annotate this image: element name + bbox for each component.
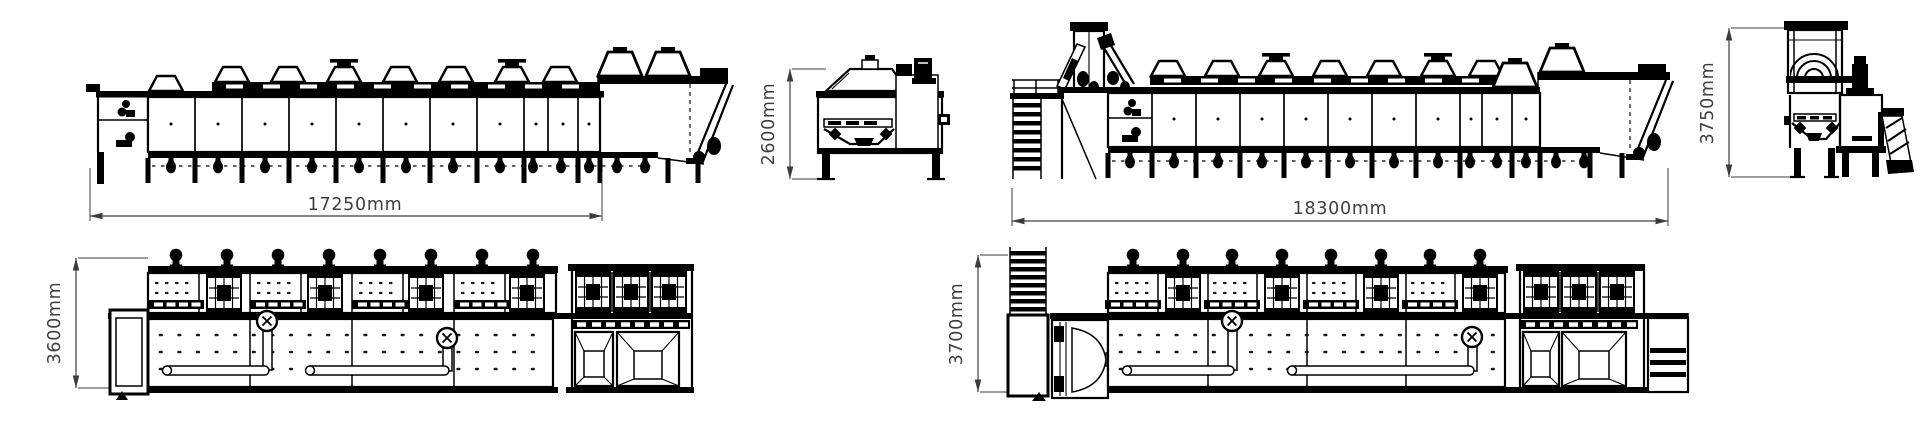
hopper-plan-b-1 xyxy=(1523,332,1559,386)
fan-symbol xyxy=(1222,311,1242,331)
plan-a-upper-deck xyxy=(148,273,556,313)
vent-knobs-b xyxy=(1127,249,1487,268)
fan-module xyxy=(576,272,610,312)
fan-symbol xyxy=(437,328,457,348)
plan-a-lower-deck xyxy=(145,311,553,387)
plan-view-b: 3700mm xyxy=(947,247,1688,401)
side-view-a: 17250mm xyxy=(86,47,733,221)
fan-symbol xyxy=(1462,327,1482,347)
dimension-end-a-height: 2600mm xyxy=(759,69,826,179)
end-a-side-panel xyxy=(896,75,938,153)
burner-row-b xyxy=(1112,151,1596,168)
engineering-drawing-canvas: 17250mm 2600mm xyxy=(0,0,1920,432)
dimension-label-side-a-length: 17250mm xyxy=(308,195,403,215)
burner-module xyxy=(207,273,241,313)
dimension-label-end-a-height: 2600mm xyxy=(759,83,779,166)
roof-hood-assembly-a xyxy=(149,47,690,91)
fan-module xyxy=(614,272,648,312)
discharge-chute-a xyxy=(598,68,733,164)
fan-block-plan-b xyxy=(1514,264,1646,393)
roof-hood-assembly-b xyxy=(1150,43,1584,87)
burner-module xyxy=(510,273,544,313)
fan-module xyxy=(1524,272,1558,312)
end-b-chute xyxy=(1878,108,1914,174)
ladder-plan-b xyxy=(1010,247,1046,315)
support-legs-b xyxy=(1106,153,1625,178)
hopper-plan-a-1 xyxy=(575,332,613,386)
plan-b-lower-deck xyxy=(1108,311,1505,387)
access-stairs-b xyxy=(1010,80,1096,179)
feed-elevator-b xyxy=(1057,22,1134,93)
fan-block-plan-a xyxy=(566,264,694,393)
infeed-box-plan-b xyxy=(1008,315,1048,396)
discharge-chute-b xyxy=(1538,64,1673,160)
end-b-motor xyxy=(1846,56,1874,95)
dimension-end-b-height: 3750mm xyxy=(1698,28,1795,177)
vent-knobs-a xyxy=(170,249,540,268)
side-view-b: 18300mm xyxy=(1010,22,1673,226)
dimension-label-end-b-height: 3750mm xyxy=(1698,62,1718,145)
burner-module xyxy=(1463,273,1497,313)
side-steps-plan-b xyxy=(1648,313,1688,392)
burner-module xyxy=(1265,273,1299,313)
hopper-plan-a-2 xyxy=(617,332,679,386)
burner-module xyxy=(1364,273,1398,313)
hopper-plan-b-2 xyxy=(1562,332,1626,386)
plan-view-a: 3600mm xyxy=(45,249,694,400)
fan-symbol xyxy=(257,311,277,331)
end-b-trough xyxy=(1784,95,1840,148)
end-a-legs xyxy=(817,154,945,179)
fan-module xyxy=(1562,272,1596,312)
dryer-body-b xyxy=(1058,87,1600,153)
dryer-body-a xyxy=(148,97,658,158)
end-view-b xyxy=(1784,21,1914,177)
dimension-label-side-b-length: 18300mm xyxy=(1293,199,1388,219)
plan-b-upper-deck xyxy=(1105,273,1505,313)
end-view-a xyxy=(816,55,950,179)
fan-module xyxy=(1600,272,1634,312)
dimension-label-plan-a-width: 3600mm xyxy=(45,282,65,365)
dimension-label-plan-b-width: 3700mm xyxy=(947,283,967,366)
burner-module xyxy=(1166,273,1200,313)
fan-module xyxy=(652,272,686,312)
burner-module xyxy=(409,273,443,313)
burner-module xyxy=(308,273,342,313)
infeed-box-plan-a xyxy=(110,310,148,400)
